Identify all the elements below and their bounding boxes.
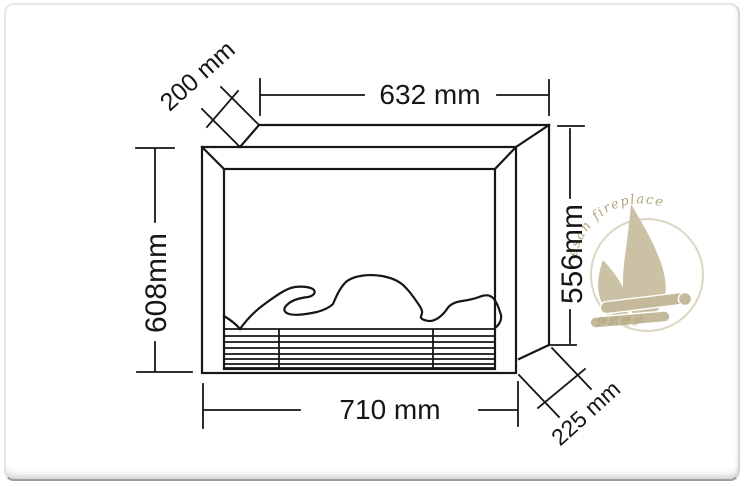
dimension-annotations: 632 mm 608mm 556mm 710 mm — [136, 35, 625, 450]
bevel-top-left — [202, 147, 224, 169]
screenshot-canvas: esan fireplace 伊凯壁炉 — [0, 0, 745, 487]
dimension-top-width: 632 mm — [260, 79, 549, 115]
fireplace-dimension-diagram: esan fireplace 伊凯壁炉 — [6, 5, 740, 481]
fireplace-outline — [202, 125, 549, 373]
dimension-top-depth: 200 mm — [155, 35, 259, 147]
dimension-label-top-depth: 200 mm — [155, 35, 241, 116]
dimension-bottom-depth: 225 mm — [519, 348, 625, 451]
image-frame: esan fireplace 伊凯壁炉 — [4, 3, 740, 481]
dimension-label-right-height: 556mm — [556, 204, 589, 304]
depth-edge-bottom-right — [519, 345, 549, 359]
dimension-bottom-width: 710 mm — [203, 382, 518, 428]
front-face-outer — [202, 147, 516, 373]
louver-grille — [224, 329, 495, 369]
dimension-top-depth-lines — [202, 87, 259, 147]
watermark-cjk-text: 伊凯壁炉 — [596, 316, 644, 328]
depth-edge-top-right — [516, 125, 549, 147]
dimension-right-height: 556mm — [551, 126, 589, 345]
dimension-left-height: 608mm — [136, 148, 192, 372]
dimension-label-bottom-depth: 225 mm — [546, 376, 625, 451]
flame-log-outline — [224, 275, 501, 329]
dimension-label-bottom-width: 710 mm — [339, 394, 440, 425]
front-opening-inner — [224, 169, 495, 369]
bevel-top-right — [495, 147, 516, 169]
dimension-label-top-width: 632 mm — [379, 79, 480, 110]
depth-edge-top-left — [240, 125, 259, 147]
dimension-label-left-height: 608mm — [140, 233, 173, 333]
